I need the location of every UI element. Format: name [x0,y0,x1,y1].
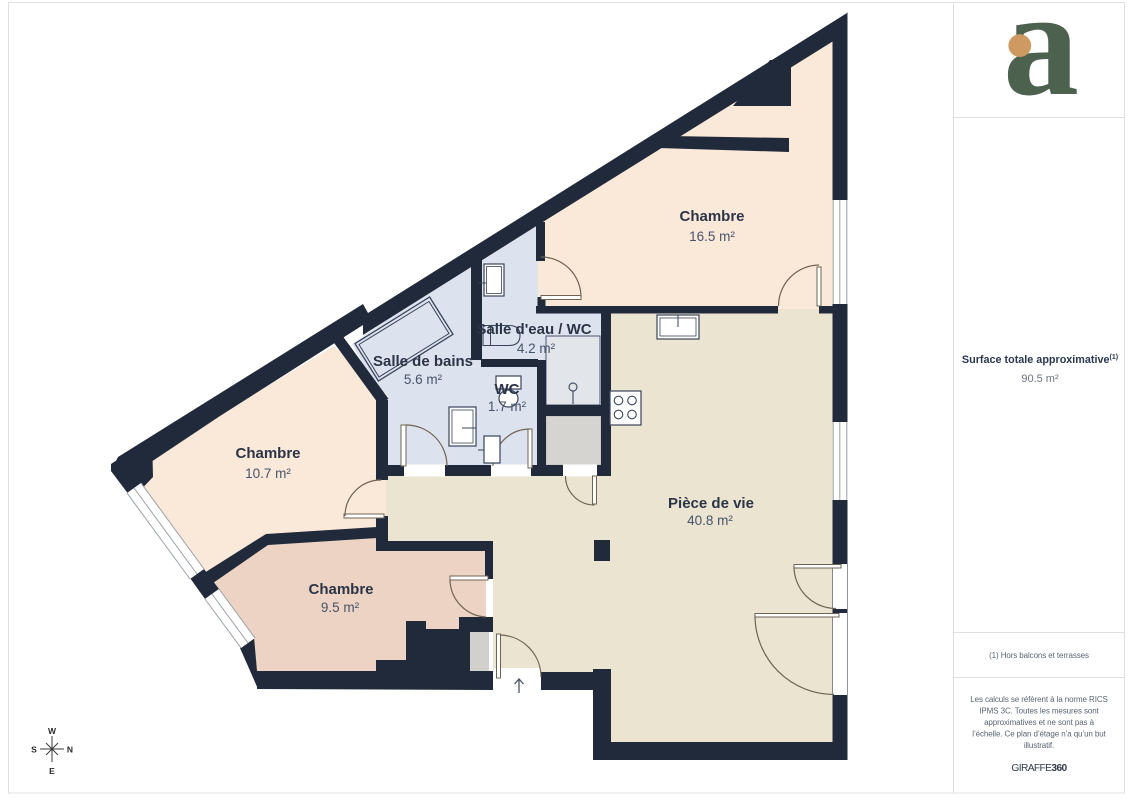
svg-text:9.5 m²: 9.5 m² [321,600,360,615]
svg-text:l’échelle. Ce plan d’étage n’a: l’échelle. Ce plan d’étage n’a qu’un but [972,730,1106,739]
svg-text:Surface totale approximative(1: Surface totale approximative(1) [962,354,1118,366]
svg-text:S: S [31,745,37,755]
svg-text:E: E [49,766,55,776]
svg-text:Chambre: Chambre [235,445,300,462]
svg-text:5.6 m²: 5.6 m² [404,372,443,387]
svg-text:Pièce de vie: Pièce de vie [668,495,754,512]
svg-text:10.7 m²: 10.7 m² [245,466,291,481]
svg-text:4.2 m²: 4.2 m² [517,341,556,356]
svg-text:Chambre: Chambre [679,208,744,225]
svg-text:Chambre: Chambre [308,581,373,598]
svg-text:16.5 m²: 16.5 m² [689,229,735,244]
svg-text:a: a [1003,0,1079,127]
svg-text:WC: WC [495,381,520,398]
svg-text:illustratif.: illustratif. [1024,741,1054,750]
svg-text:Salle d'eau / WC: Salle d'eau / WC [476,321,591,338]
svg-text:90.5 m²: 90.5 m² [1021,373,1059,385]
svg-text:approximatives et ne sont pas: approximatives et ne sont pas à [984,718,1095,727]
svg-text:N: N [67,745,73,755]
svg-text:Salle de bains: Salle de bains [373,353,473,370]
svg-text:(1) Hors balcons et terrasses: (1) Hors balcons et terrasses [989,651,1089,660]
svg-text:Les calculs se réfèrent à la n: Les calculs se réfèrent à la norme RICS [970,695,1108,704]
svg-text:40.8 m²: 40.8 m² [687,513,733,528]
svg-text:GIRAFFE360: GIRAFFE360 [1011,763,1067,774]
svg-text:1.7 m²: 1.7 m² [488,399,527,414]
svg-text:W: W [48,726,57,736]
svg-text:IPMS 3C. Toutes les mesures so: IPMS 3C. Toutes les mesures sont [979,707,1099,716]
